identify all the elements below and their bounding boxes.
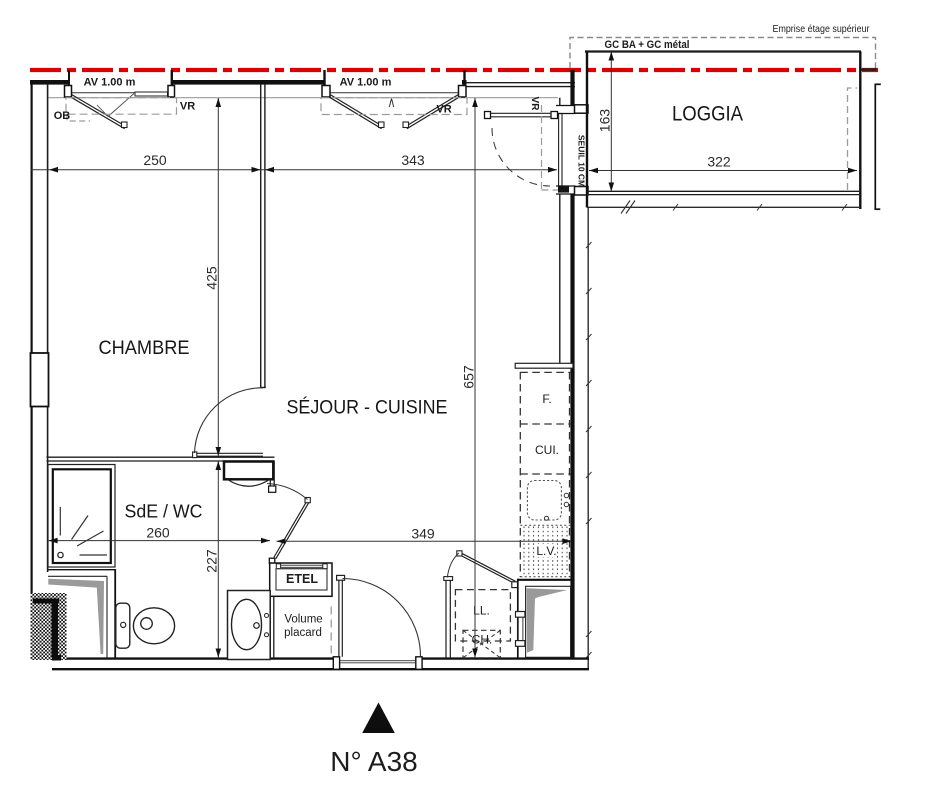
- svg-text:SEUIL 10 CM: SEUIL 10 CM: [576, 135, 586, 187]
- svg-text:VR: VR: [436, 104, 451, 116]
- svg-text:VR: VR: [529, 97, 540, 112]
- svg-text:LOGGIA: LOGGIA: [672, 102, 744, 126]
- svg-text:SÉJOUR - CUISINE: SÉJOUR - CUISINE: [287, 398, 448, 419]
- svg-text:placard: placard: [284, 627, 322, 639]
- svg-text:AV 1.00 m: AV 1.00 m: [340, 77, 392, 89]
- svg-text:227: 227: [204, 549, 220, 573]
- svg-text:SdE / WC: SdE / WC: [125, 501, 203, 522]
- svg-text:N° A38: N° A38: [330, 746, 417, 777]
- svg-text:CUI.: CUI.: [535, 443, 559, 457]
- svg-text:CHAMBRE: CHAMBRE: [99, 337, 190, 359]
- svg-text:ETEL: ETEL: [286, 572, 318, 586]
- svg-text:LL.: LL.: [473, 604, 490, 618]
- svg-text:260: 260: [146, 525, 170, 541]
- svg-text:322: 322: [707, 154, 731, 170]
- svg-text:VR: VR: [180, 101, 195, 113]
- svg-text:Volume: Volume: [284, 614, 322, 626]
- svg-text:L.V.: L.V.: [536, 544, 556, 558]
- svg-text:GC BA + GC métal: GC BA + GC métal: [605, 39, 690, 51]
- svg-text:Emprise étage supérieur: Emprise étage supérieur: [773, 23, 870, 35]
- svg-text:349: 349: [411, 526, 435, 542]
- svg-text:343: 343: [401, 152, 425, 168]
- svg-text:657: 657: [460, 365, 476, 389]
- svg-text:425: 425: [204, 266, 220, 290]
- svg-text:250: 250: [143, 152, 167, 168]
- svg-text:AV 1.00 m: AV 1.00 m: [84, 77, 136, 89]
- svg-text:163: 163: [597, 109, 613, 133]
- svg-text:OB: OB: [54, 110, 71, 122]
- svg-text:F.: F.: [542, 392, 551, 406]
